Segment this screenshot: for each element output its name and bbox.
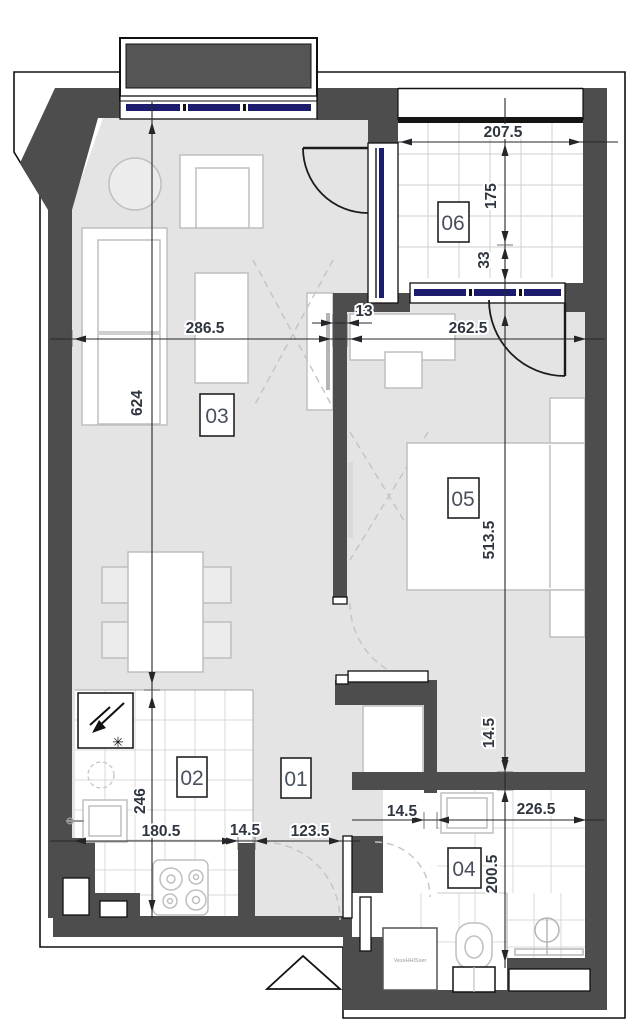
- bottom-wall-left: [53, 916, 352, 937]
- hall-closet: [363, 706, 423, 775]
- top-wall: [317, 88, 398, 120]
- sliding-door-jamb: [336, 675, 348, 684]
- dim-balcony-depth: 175: [483, 183, 500, 209]
- dim-bath-height: 200.5: [484, 854, 501, 893]
- floor-plan-drawing: ✳ VessHHISser: [0, 0, 640, 1036]
- duct-shaft: [509, 969, 590, 991]
- radiator: [348, 462, 353, 538]
- round-side-table: [109, 158, 161, 210]
- dim-kitchen-width: 180.5: [142, 823, 181, 840]
- right-wall: [585, 312, 607, 1010]
- dim-bath-width: 226.5: [517, 801, 556, 818]
- dim-bedroom-width: 262.5: [449, 320, 488, 337]
- entrance-marker-icon: [267, 956, 340, 989]
- balcony-right-wall: [583, 88, 607, 312]
- dim-balcony-width: 207.5: [484, 124, 523, 141]
- bedroom-window-glazing: [414, 289, 561, 296]
- dim-living-height: 624: [129, 390, 146, 416]
- partition-wall: [333, 312, 347, 597]
- duct-shaft: [63, 878, 89, 915]
- washer-label: VessHHISser: [394, 958, 427, 964]
- bedroom-desk: [385, 352, 422, 388]
- balcony-door-glazing: [379, 148, 384, 298]
- room-label-02: 02: [180, 767, 203, 790]
- dim-living-width: 286.5: [186, 320, 225, 337]
- room-label-04: 04: [452, 858, 476, 881]
- window-mullion-mark: [519, 289, 522, 296]
- room-label-05: 05: [451, 488, 474, 511]
- dim-balcony-offset: 33: [476, 251, 493, 269]
- stove-icon: [153, 860, 208, 915]
- living-window-glazing: [126, 104, 311, 111]
- dim-bath-wall: 14.5: [387, 803, 418, 820]
- washbasin-icon: [441, 793, 493, 833]
- bathroom-door-leaf: [360, 897, 371, 951]
- partition-wall-cap: [333, 597, 347, 604]
- dim-partition: 13: [355, 303, 373, 320]
- floor-plan-page: ✳ VessHHISser: [0, 0, 640, 1036]
- dim-hall-width: 123.5: [291, 823, 330, 840]
- nightstand: [550, 590, 585, 637]
- dim-bedroom-wall: 14.5: [481, 718, 498, 749]
- sofa-cushion: [98, 240, 160, 332]
- bed: [407, 443, 585, 590]
- toilet-icon: [453, 923, 495, 992]
- armchair-cushion: [196, 168, 249, 228]
- bathroom-top-wall: [352, 772, 588, 790]
- room-label-06: 06: [441, 212, 464, 235]
- pocket-door-wall: [335, 680, 437, 705]
- room-label-03: 03: [205, 405, 228, 428]
- bedroom-top-wall-right: [565, 283, 588, 312]
- entrance-door-leaf: [343, 836, 352, 918]
- dim-kitchen-height: 246: [132, 788, 149, 814]
- dim-bedroom-height: 513.5: [481, 520, 498, 559]
- snowflake-icon: ✳: [112, 734, 124, 750]
- window-mullion-mark: [243, 104, 246, 111]
- window-mullion-mark: [183, 104, 186, 111]
- entrance-right-wall: [352, 836, 383, 893]
- dim-entrance-jamb: 14.5: [230, 822, 261, 839]
- nightstand: [550, 398, 585, 443]
- top-balcony-slab: [126, 44, 311, 88]
- sliding-door-leaf: [348, 671, 428, 682]
- dining-table: [128, 552, 203, 672]
- entrance-left-jamb: [238, 843, 255, 918]
- room-label-01: 01: [284, 768, 307, 791]
- window-mullion-mark: [469, 289, 472, 296]
- bottom-wall-right: [383, 990, 607, 1010]
- washer-icon: VessHHISser: [383, 928, 437, 990]
- balcony-railing: [398, 117, 583, 123]
- duct-shaft: [100, 901, 127, 917]
